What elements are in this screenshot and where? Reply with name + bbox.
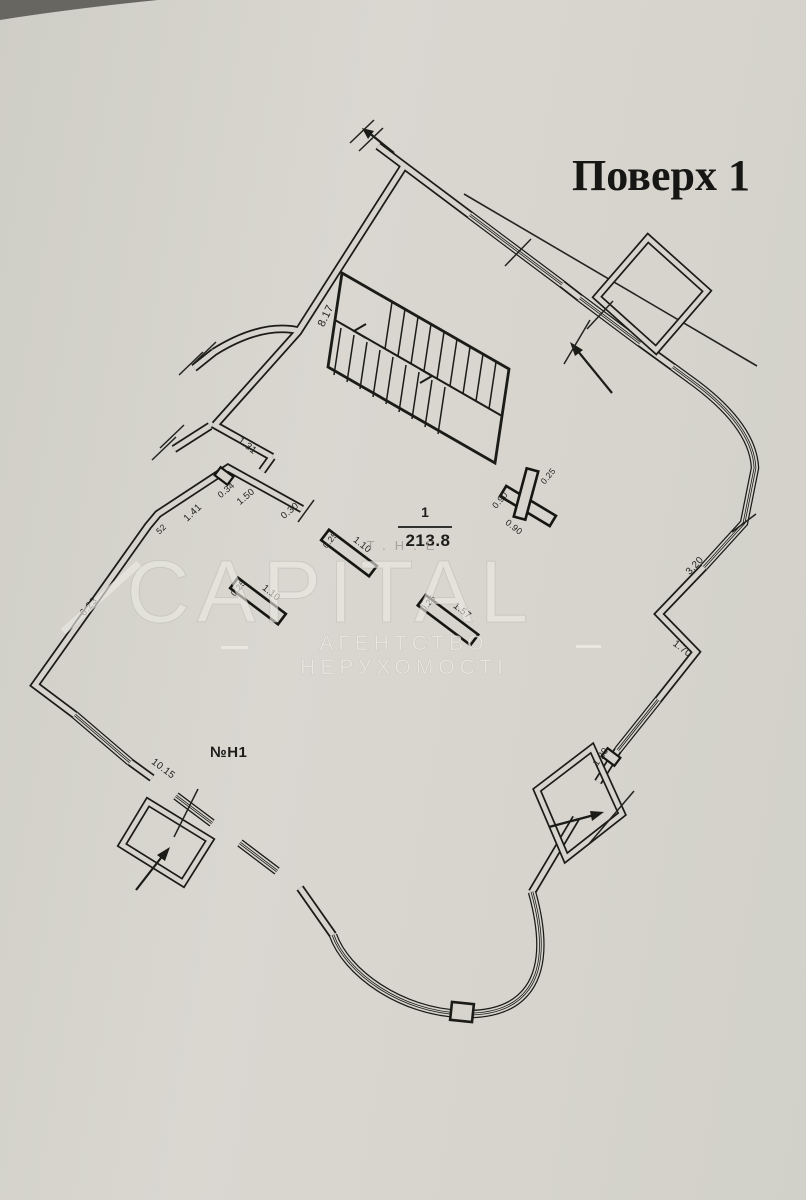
room-number: 1: [412, 504, 438, 520]
watermark-rule-left: [221, 646, 248, 649]
watermark-rule-right: [576, 645, 601, 648]
watermark-tagline: АГЕНТСТВО НЕРУХОМОСТІ: [222, 632, 586, 680]
staircase-treads: [334, 302, 496, 434]
staircase: [328, 273, 509, 463]
watermark-brand: CAPITAL: [46, 548, 616, 636]
unit-label: №Н1: [210, 744, 247, 761]
floorplan-photo: 8.171.310.341.500.301.41526.2310.153.201…: [0, 0, 806, 1200]
floor-title: Поверх 1: [542, 150, 780, 201]
bay-mullion: [450, 1002, 474, 1022]
tick-marks: [152, 120, 756, 845]
photo-edge-shadow: [0, 0, 158, 20]
